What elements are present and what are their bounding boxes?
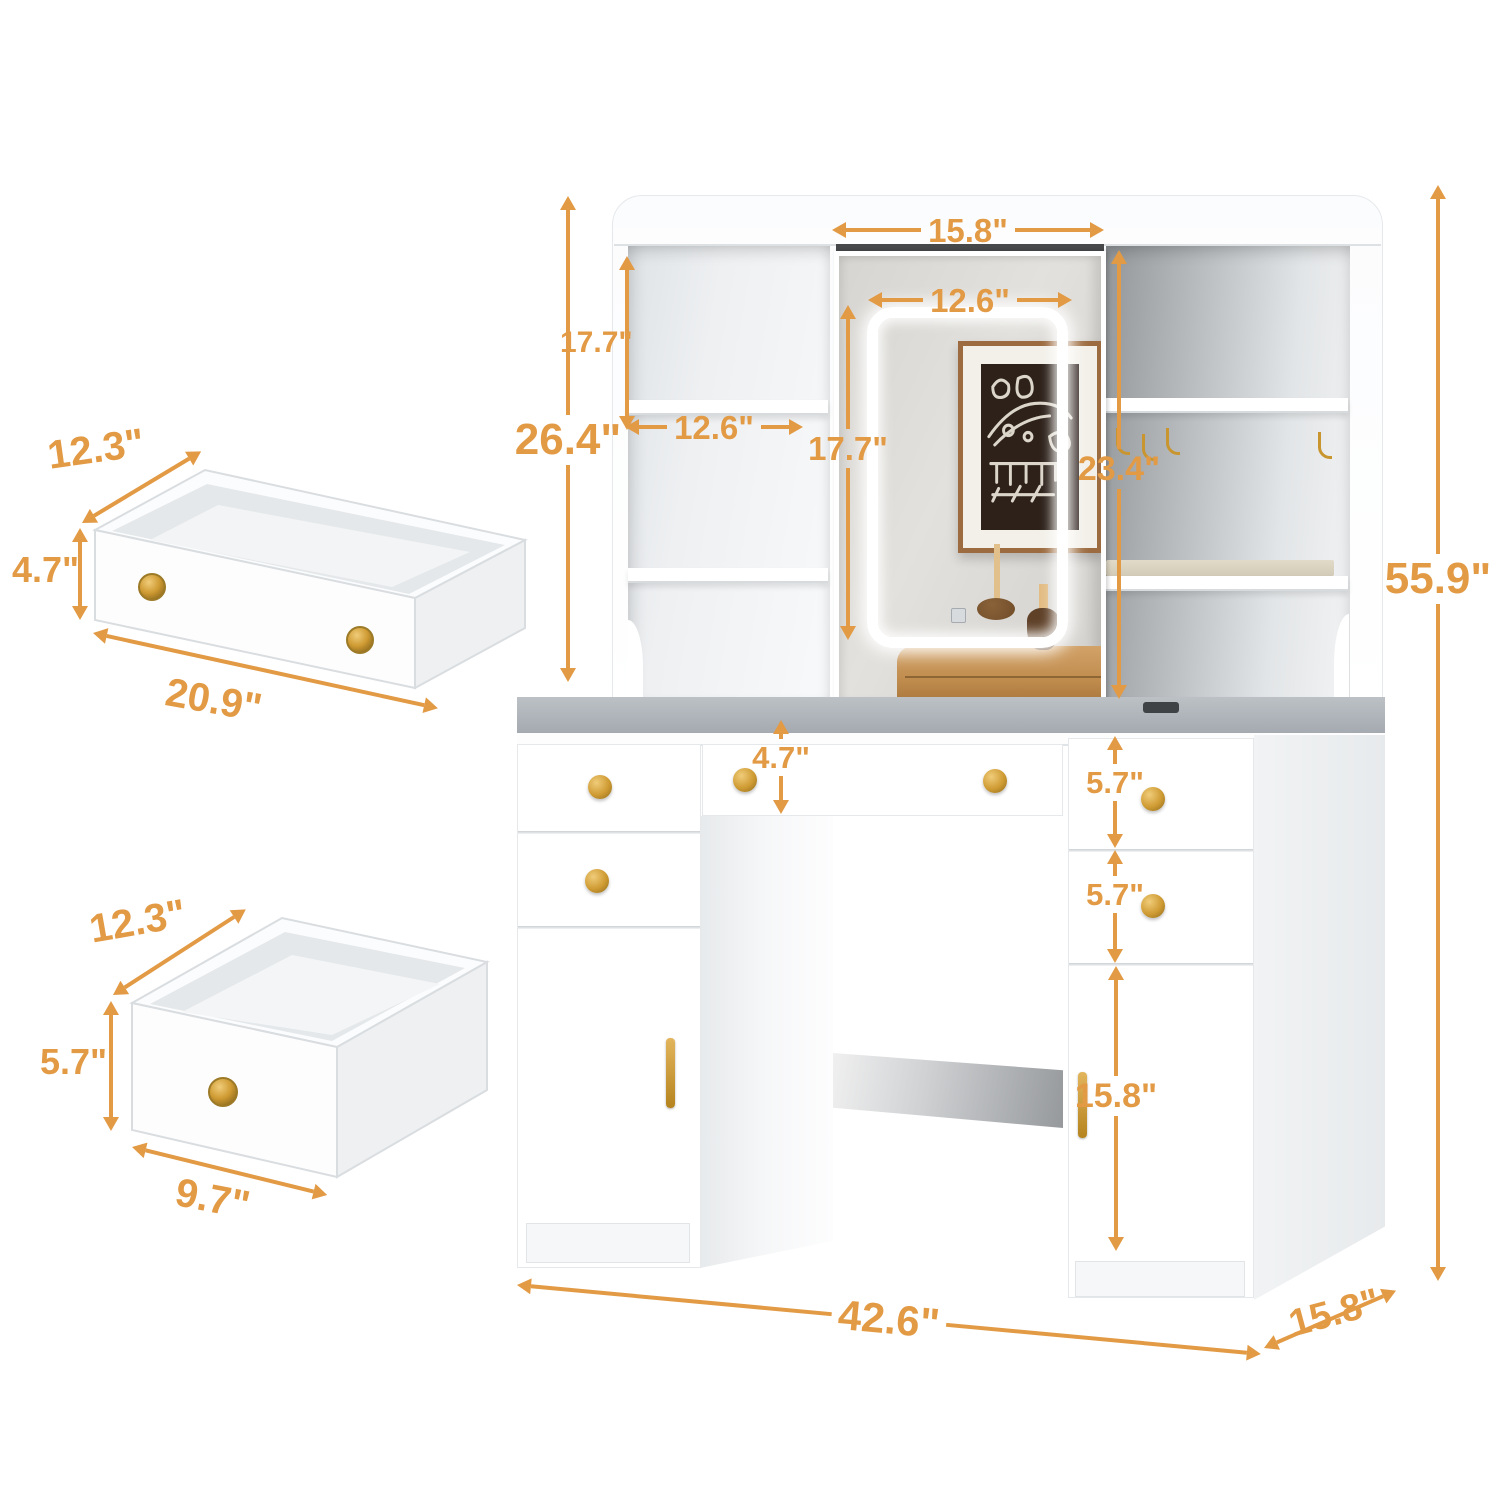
- dim-hutch-top-width: 15.8": [832, 212, 1104, 248]
- arrow-up-icon: [619, 256, 635, 270]
- dim-left-shelf-width: 12.6": [625, 409, 803, 445]
- drawer-knob: [139, 574, 165, 600]
- arrow-left-icon: [516, 1277, 531, 1294]
- dim-label: 12.6": [667, 411, 761, 444]
- dim-label: 12.6": [923, 284, 1017, 317]
- dim-right-cabinet-height: 15.8": [1068, 966, 1164, 1251]
- dim-label: 15.8": [1075, 1076, 1157, 1116]
- dim-label: 26.4": [515, 415, 622, 465]
- arrow-down-icon: [1430, 1267, 1446, 1281]
- arrow-down-icon: [72, 606, 88, 620]
- dim-label: 15.8": [921, 214, 1015, 247]
- product-dimension-diagram: 15.8" 12.6" 12.6" 17.7" 26.4" 17.7": [0, 0, 1500, 1500]
- arrow-up-icon: [1108, 966, 1124, 980]
- dim-led-height: 17.7": [808, 305, 888, 640]
- arrow-down-icon: [1107, 949, 1123, 963]
- dim-label: 55.9": [1385, 554, 1492, 604]
- arrow-up-icon: [1107, 850, 1123, 864]
- arrow-up-icon: [72, 528, 88, 542]
- arrow-right-icon: [1058, 292, 1072, 308]
- dim-label: 4.7": [12, 552, 79, 588]
- dim-label: 4.7": [752, 739, 810, 776]
- dim-hutch-height: 26.4": [518, 196, 618, 682]
- arrow-up-icon: [103, 1001, 119, 1015]
- arrow-up-icon: [1430, 185, 1446, 199]
- arrow-right-icon: [1090, 222, 1104, 238]
- dim-right-top-drawer-height: 5.7": [1075, 736, 1155, 848]
- dim-center-drawer-height: 4.7": [741, 720, 821, 814]
- arrow-down-icon: [103, 1117, 119, 1131]
- arrow-up-icon: [1111, 250, 1127, 264]
- arrow-up-icon: [840, 305, 856, 319]
- dim-label: 5.7": [1086, 876, 1144, 913]
- arrow-down-icon: [840, 626, 856, 640]
- dim-label: 5.7": [1086, 764, 1144, 801]
- arrow-up-icon: [773, 720, 789, 734]
- drawer-knob: [347, 627, 373, 653]
- arrow-left-icon: [832, 222, 846, 238]
- arrow-down-icon: [773, 800, 789, 814]
- arrow-up-icon: [560, 196, 576, 210]
- dim-led-width: 12.6": [868, 282, 1072, 318]
- dim-right-middle-drawer-height: 5.7": [1075, 850, 1155, 963]
- dim-label: 17.7": [808, 429, 888, 468]
- arrow-down-icon: [1111, 685, 1127, 699]
- arrow-down-icon: [619, 416, 635, 430]
- arrow-up-icon: [1107, 736, 1123, 750]
- dim-label: 5.7": [40, 1044, 107, 1080]
- arrow-right-icon: [789, 419, 803, 435]
- arrow-down-icon: [1108, 1237, 1124, 1251]
- arrow-down-icon: [1107, 834, 1123, 848]
- dim-mirror-height: 23.4": [1079, 250, 1159, 699]
- arrow-down-icon: [560, 668, 576, 682]
- arrow-right-icon: [1246, 1345, 1261, 1362]
- dim-label: 23.4": [1078, 449, 1160, 489]
- dim-label: 42.6": [829, 1293, 948, 1346]
- dim-overall-height: 55.9": [1383, 185, 1493, 1281]
- drawer-knob: [209, 1078, 237, 1106]
